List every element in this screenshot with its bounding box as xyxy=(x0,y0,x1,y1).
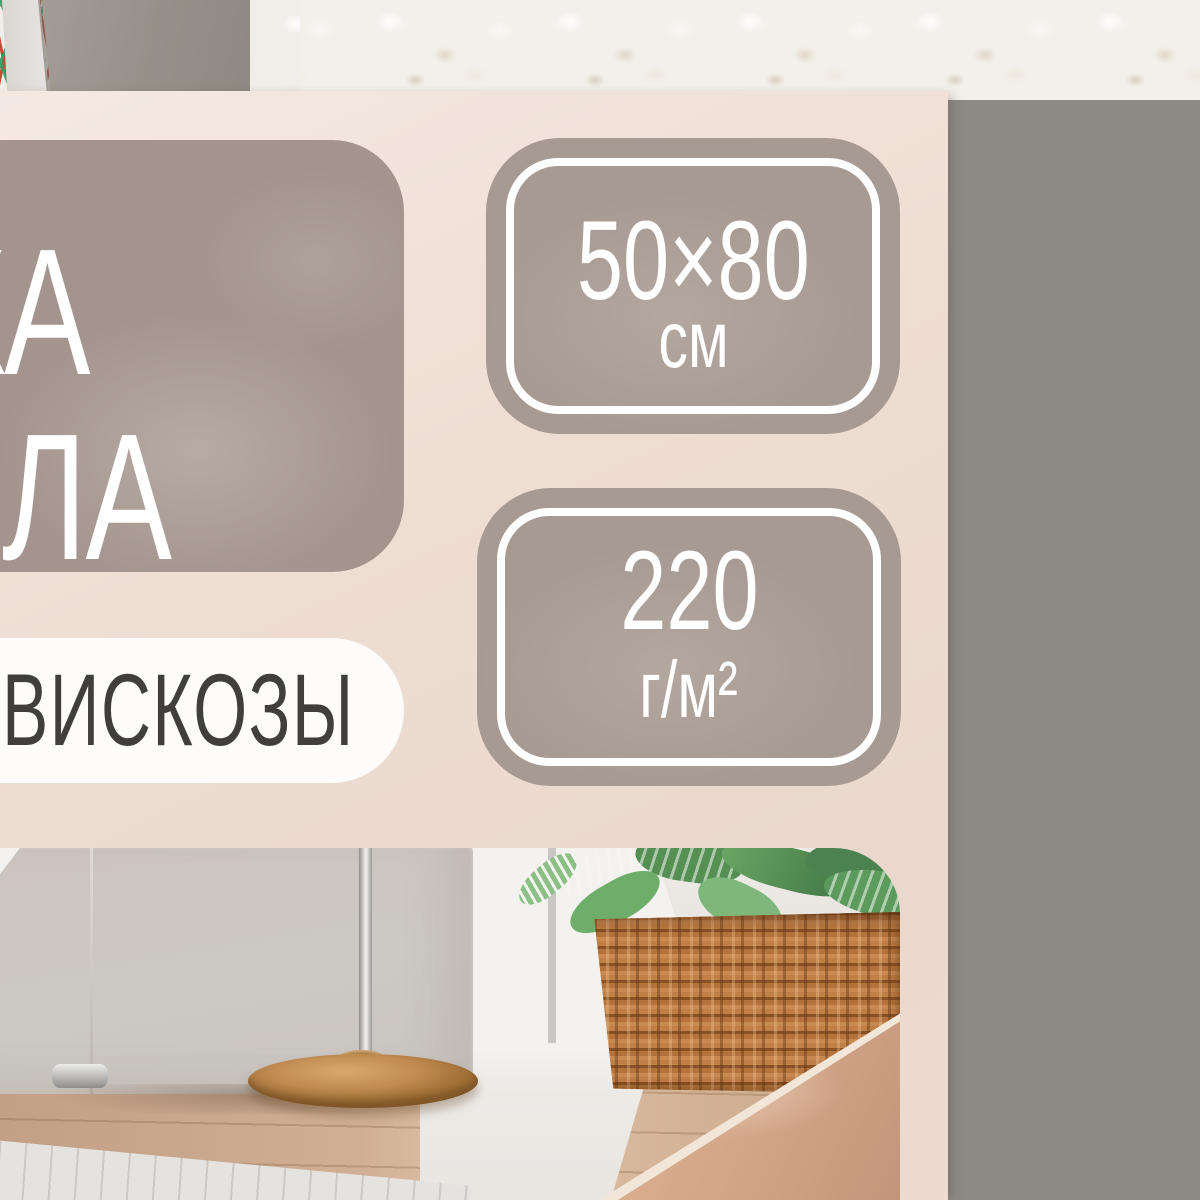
product-package-photo: КА ОЛА ВИСКОЗЫ 50×80 см 220 г/м² xyxy=(0,0,1200,1200)
title-line1: КА xyxy=(0,223,89,403)
size-unit: см xyxy=(658,308,728,372)
title-panel: КА ОЛА xyxy=(0,140,404,572)
photo-white-cushion xyxy=(0,848,23,896)
material-text: ВИСКОЗЫ xyxy=(2,638,355,783)
title-line2: ОЛА xyxy=(0,408,171,588)
density-value: 220 xyxy=(620,543,758,638)
density-badge: 220 г/м² xyxy=(477,488,901,786)
photo-lamp-base xyxy=(248,1054,478,1108)
size-badge: 50×80 см xyxy=(486,138,900,434)
photo-sofa-seam xyxy=(90,848,93,1094)
material-pill: ВИСКОЗЫ xyxy=(0,638,404,783)
product-label: КА ОЛА ВИСКОЗЫ 50×80 см 220 г/м² xyxy=(0,91,948,1200)
photo-lamp-pole xyxy=(359,848,372,1080)
lifestyle-photo xyxy=(0,848,900,1200)
size-value: 50×80 xyxy=(577,213,810,308)
density-unit: г/м² xyxy=(640,658,738,722)
